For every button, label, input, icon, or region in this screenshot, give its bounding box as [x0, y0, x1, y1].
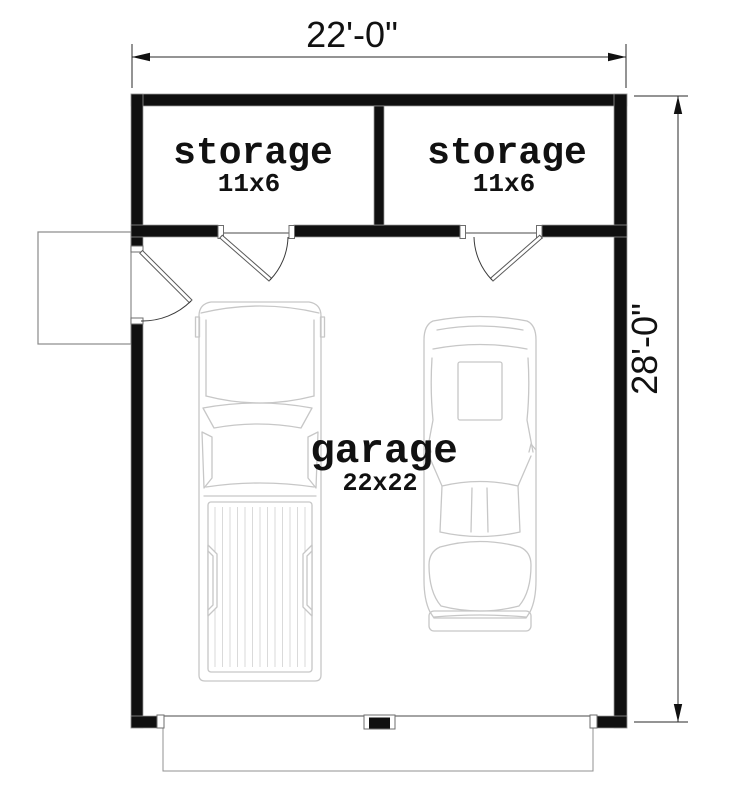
side-stoop — [38, 232, 131, 344]
entry-door-swing-arc — [141, 301, 191, 321]
storage-wall-segment-1 — [131, 225, 218, 237]
storage-wall-segment-2 — [294, 225, 460, 237]
storage-door-right-swing-arc — [474, 237, 492, 280]
wall-left-lower — [131, 324, 143, 728]
depth-dimension-label: 28'-0" — [624, 303, 665, 395]
storage-door-left-swing-arc — [270, 237, 288, 280]
storage-wall-segment-3 — [542, 225, 627, 237]
wall-left-upper — [131, 94, 143, 246]
storage-right-size: 11x6 — [473, 169, 535, 199]
wall-top — [131, 94, 627, 106]
garage-door-center-post — [369, 718, 390, 729]
width-dimension-label: 22'-0" — [306, 14, 398, 55]
garage-door-jamb-left — [157, 715, 164, 728]
width-dimension: 22'-0" — [132, 14, 626, 88]
storage-door-right-jamb-a — [460, 226, 466, 239]
entry-door — [131, 246, 192, 324]
arrow-left-icon — [132, 53, 150, 61]
storage-door-right — [460, 226, 542, 282]
storage-door-left-jamb-b — [289, 226, 295, 239]
floor-plan-page: 22'-0" 28'-0" storage 11x6 storage 11x6 … — [0, 0, 750, 788]
garage-size: 22x22 — [342, 469, 417, 498]
floor-plan-drawing: 22'-0" 28'-0" storage 11x6 storage 11x6 … — [0, 0, 750, 788]
wall-right — [614, 94, 627, 728]
storage-door-left — [218, 226, 295, 282]
storage-door-right-leaf — [491, 235, 543, 281]
depth-extension-lines — [634, 96, 688, 722]
garage-door-jamb-right — [590, 715, 597, 728]
arrow-right-icon — [608, 53, 626, 61]
storage-left-size: 11x6 — [218, 169, 280, 199]
depth-dimension: 28'-0" — [624, 96, 688, 722]
wall-bottom-right-return — [595, 716, 627, 728]
pickup-truck-drawing — [196, 302, 325, 681]
storage-divider-wall — [374, 106, 384, 225]
arrow-down-icon — [674, 704, 682, 722]
entry-door-leaf — [140, 251, 192, 303]
arrow-up-icon — [674, 96, 682, 114]
storage-door-left-leaf — [220, 235, 272, 281]
